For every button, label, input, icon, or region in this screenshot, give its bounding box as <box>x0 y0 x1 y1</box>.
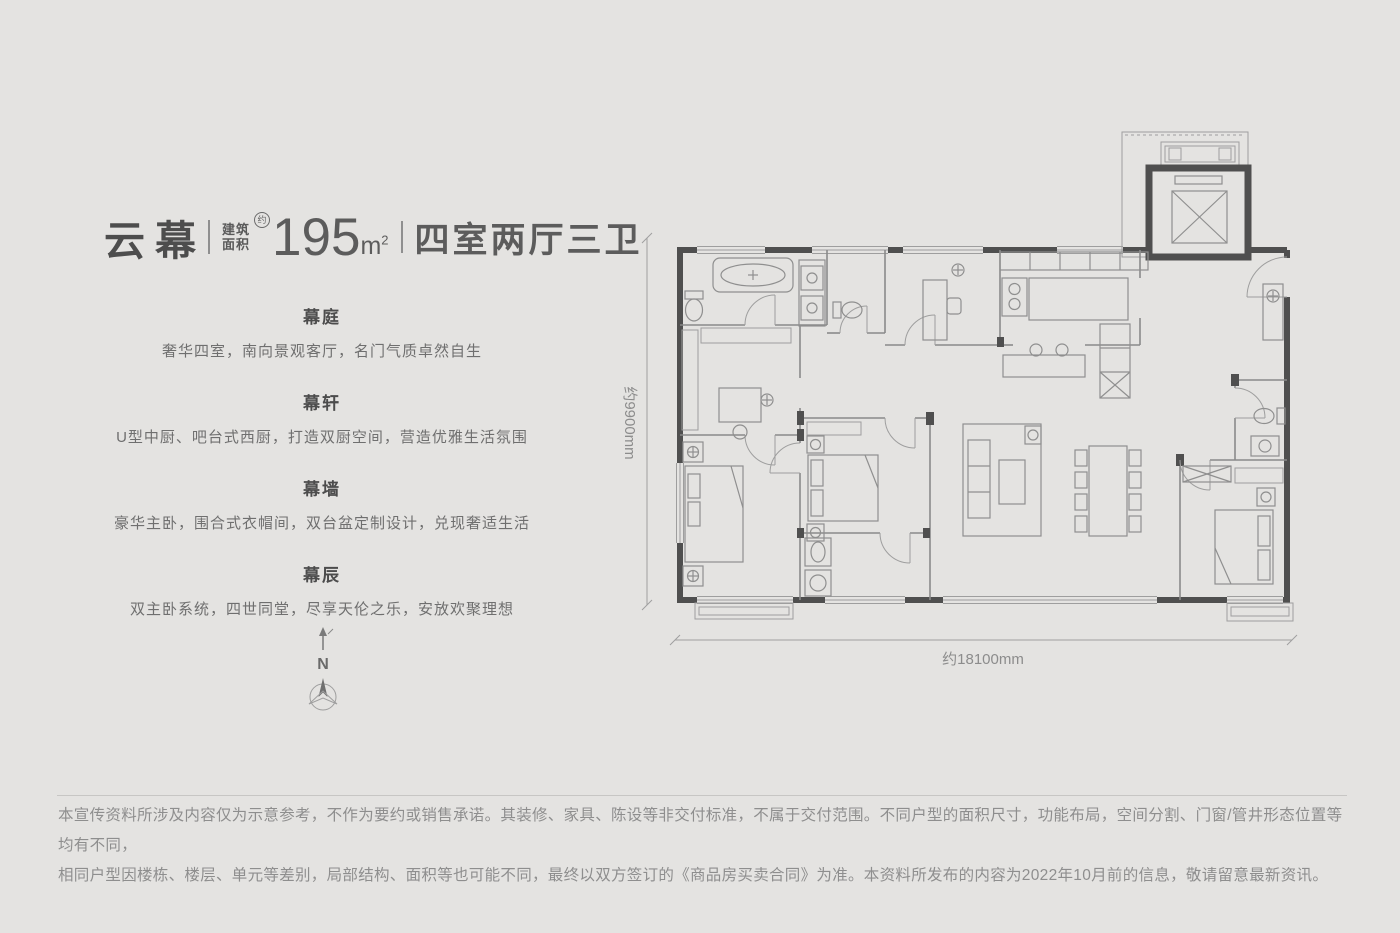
feature-desc: 豪华主卧，围合式衣帽间，双台盆定制设计，兑现奢适生活 <box>58 512 586 533</box>
plant-icon <box>761 394 773 406</box>
stove-icon <box>1002 278 1027 316</box>
window <box>1227 597 1283 604</box>
plant-icon <box>952 264 964 276</box>
window <box>943 597 1157 604</box>
title-block: 云幕 建筑 面积 约 195 m2 四室两厅三卫 <box>104 206 643 268</box>
master-bathroom <box>685 258 825 326</box>
dining-chairs <box>1075 450 1141 532</box>
divider-line <box>57 795 1347 796</box>
floorplan-drawing: 约9900mm 约18100mm <box>595 88 1370 688</box>
washing-machine-icon <box>805 570 831 596</box>
wardrobe-shelving <box>682 330 698 430</box>
bedroom-2 <box>805 422 878 596</box>
feature-list: 幕庭 奢华四室，南向景观客厅，名门气质卓然自生 幕轩 U型中厨、吧台式西厨，打造… <box>58 303 586 647</box>
area-value: 195 <box>272 211 360 264</box>
feature-title: 幕庭 <box>58 303 586 328</box>
wardrobe-shelving <box>701 328 791 343</box>
bathroom-3 <box>1251 408 1285 456</box>
exterior-walls <box>680 247 1290 603</box>
wall-nubs <box>797 337 1239 538</box>
depth-dimension: 约9900mm <box>621 233 652 610</box>
toilet-icon <box>1254 408 1285 424</box>
side-table-icon <box>1025 426 1041 444</box>
interior-walls <box>680 250 1287 600</box>
window <box>812 247 888 254</box>
window <box>697 247 765 254</box>
approx-circle-mark: 约 <box>254 212 270 228</box>
windows <box>677 247 1284 604</box>
nightstand-icon <box>807 436 824 453</box>
window <box>677 463 684 543</box>
bed-icon <box>808 455 878 521</box>
living-room <box>963 424 1041 536</box>
north-label: N <box>317 656 329 673</box>
wardrobe-icon <box>1183 466 1231 482</box>
feature-desc: 双主卧系统，四世同堂，尽享天伦之乐，安放欢聚理想 <box>58 598 586 619</box>
bedroom-3 <box>1183 466 1283 584</box>
nightstand-icon <box>683 442 703 462</box>
disclaimer: 本宣传资料所涉及内容仅为示意参考，不作为要约或销售承诺。其装修、家具、陈设等非交… <box>58 801 1354 891</box>
feature-item: 幕辰 双主卧系统，四世同堂，尽享天伦之乐，安放欢聚理想 <box>58 561 586 619</box>
depth-dimension-label: 约9900mm <box>621 386 638 459</box>
sink-icon <box>811 542 825 562</box>
stool-icon <box>733 425 747 439</box>
elevator <box>1149 168 1248 257</box>
bed-icon <box>685 466 743 562</box>
kitchen <box>1000 252 1148 398</box>
disclaimer-line-1: 本宣传资料所涉及内容仅为示意参考，不作为要约或销售承诺。其装修、家具、陈设等非交… <box>58 801 1354 861</box>
staircase <box>1122 132 1248 257</box>
dining-area <box>1075 446 1141 536</box>
wardrobe-shelving <box>807 422 861 435</box>
compass-icon: N <box>299 626 347 720</box>
coffee-table-icon <box>999 460 1025 504</box>
dressing-desk <box>719 388 761 422</box>
sofa-icon <box>968 440 990 518</box>
sink-icon <box>1251 436 1279 456</box>
dining-table-icon <box>1089 446 1127 536</box>
feature-desc: U型中厨、吧台式西厨，打造双厨空间，营造优雅生活氛围 <box>58 426 586 447</box>
area-label-line1: 建筑 <box>222 222 250 237</box>
feature-title: 幕轩 <box>58 389 586 414</box>
feature-item: 幕墙 豪华主卧，围合式衣帽间，双台盆定制设计，兑现奢适生活 <box>58 475 586 533</box>
study-room <box>923 264 964 340</box>
series-name: 云幕 <box>104 207 206 267</box>
area-unit: m2 <box>360 232 388 261</box>
nightstand-icon <box>683 566 703 586</box>
island-counter <box>1029 278 1128 320</box>
width-dimension: 约18100mm <box>670 635 1297 668</box>
rug-outline <box>963 424 1041 536</box>
brochure-page: 云幕 建筑 面积 约 195 m2 四室两厅三卫 幕庭 奢华四室，南向景观客厅，… <box>0 0 1400 933</box>
window <box>697 597 793 604</box>
feature-item: 幕轩 U型中厨、吧台式西厨，打造双厨空间，营造优雅生活氛围 <box>58 389 586 447</box>
area-label-line2: 面积 <box>222 237 250 252</box>
toilet-icon <box>685 291 703 321</box>
feature-desc: 奢华四室，南向景观客厅，名门气质卓然自生 <box>58 340 586 361</box>
feature-title: 幕墙 <box>58 475 586 500</box>
disclaimer-line-2: 相同户型因楼栋、楼层、单元等差别，局部结构、面积等也可能不同，最终以双方签订的《… <box>58 861 1354 891</box>
width-dimension-label: 约18100mm <box>942 651 1024 668</box>
entry-foyer <box>1263 284 1283 340</box>
wardrobe-shelving <box>1235 468 1283 483</box>
kitchen-counter <box>1000 252 1148 270</box>
bedroom-1 <box>683 442 743 586</box>
toilet-icon <box>833 302 841 318</box>
double-vanity-sinks <box>799 260 825 326</box>
bed-icon <box>1215 510 1273 584</box>
window <box>825 597 905 604</box>
title-divider-bar <box>208 220 210 254</box>
wc-room <box>833 302 862 318</box>
area-unit-letter: m <box>360 232 381 260</box>
balcony <box>695 603 1293 621</box>
tall-cabinet <box>1100 324 1130 398</box>
window <box>903 247 983 254</box>
feature-item: 幕庭 奢华四室，南向景观客厅，名门气质卓然自生 <box>58 303 586 361</box>
area-unit-sup: 2 <box>381 233 388 248</box>
area-label: 建筑 面积 <box>222 222 250 252</box>
bar-counter <box>1003 344 1085 377</box>
plant-icon <box>1267 290 1279 302</box>
feature-title: 幕辰 <box>58 561 586 586</box>
ensuite-bathroom <box>805 538 831 596</box>
nightstand-icon <box>1257 488 1275 506</box>
walk-in-closet <box>682 328 791 439</box>
chair-icon <box>947 298 961 314</box>
title-divider-bar-2 <box>401 221 403 253</box>
